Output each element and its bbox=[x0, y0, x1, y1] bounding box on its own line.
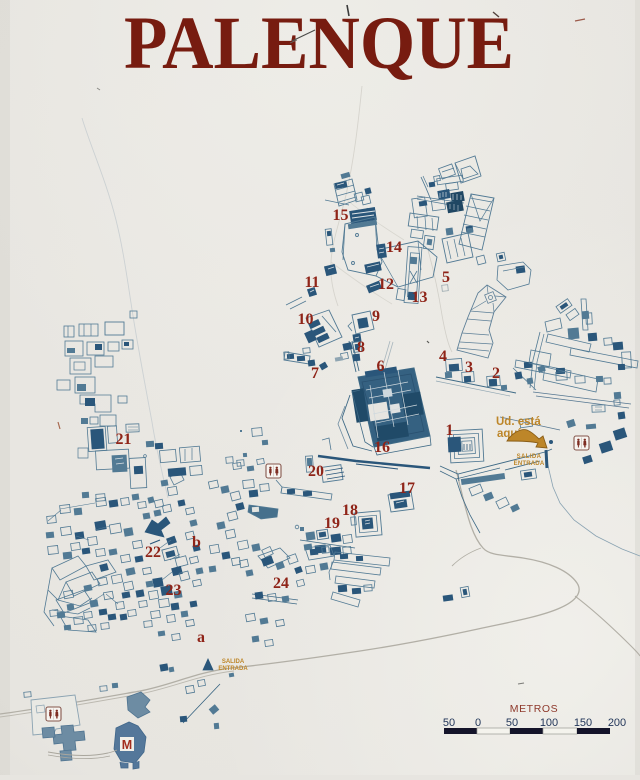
svg-text:3: 3 bbox=[465, 359, 473, 376]
svg-text:1: 1 bbox=[446, 422, 454, 439]
svg-text:b: b bbox=[192, 534, 201, 551]
svg-text:SALIDA: SALIDA bbox=[222, 659, 245, 665]
svg-text:17: 17 bbox=[399, 480, 415, 497]
svg-text:16: 16 bbox=[374, 439, 390, 456]
svg-text:12: 12 bbox=[378, 276, 394, 293]
svg-text:21: 21 bbox=[116, 431, 132, 448]
svg-text:Ud. está: Ud. está bbox=[496, 416, 541, 428]
svg-text:6: 6 bbox=[377, 358, 385, 375]
svg-text:150: 150 bbox=[574, 717, 592, 729]
svg-text:200: 200 bbox=[608, 717, 626, 729]
svg-text:10: 10 bbox=[298, 311, 314, 328]
svg-text:50: 50 bbox=[443, 717, 455, 729]
svg-text:ENTRADA: ENTRADA bbox=[514, 461, 545, 467]
svg-text:ENTRADA: ENTRADA bbox=[218, 666, 248, 672]
svg-text:20: 20 bbox=[308, 463, 324, 480]
svg-text:a: a bbox=[197, 629, 205, 646]
svg-text:13: 13 bbox=[412, 289, 428, 306]
svg-text:18: 18 bbox=[342, 502, 358, 519]
svg-text:50: 50 bbox=[506, 717, 518, 729]
svg-text:PALENQUE: PALENQUE bbox=[124, 2, 514, 85]
svg-text:23: 23 bbox=[166, 582, 182, 599]
svg-text:2: 2 bbox=[492, 365, 500, 382]
svg-text:METROS: METROS bbox=[510, 703, 559, 715]
svg-text:15: 15 bbox=[333, 207, 349, 224]
svg-text:M: M bbox=[122, 738, 132, 752]
svg-text:22: 22 bbox=[145, 544, 161, 561]
svg-text:4: 4 bbox=[439, 348, 447, 365]
svg-text:0: 0 bbox=[475, 717, 481, 729]
svg-text:8: 8 bbox=[357, 339, 365, 356]
svg-text:5: 5 bbox=[442, 269, 450, 286]
svg-text:11: 11 bbox=[304, 274, 319, 291]
svg-text:9: 9 bbox=[372, 308, 380, 325]
svg-text:24: 24 bbox=[273, 575, 289, 592]
svg-text:SALIDA: SALIDA bbox=[517, 454, 542, 460]
svg-text:7: 7 bbox=[311, 365, 319, 382]
svg-text:19: 19 bbox=[324, 515, 340, 532]
svg-text:14: 14 bbox=[386, 239, 402, 256]
svg-text:100: 100 bbox=[540, 717, 558, 729]
